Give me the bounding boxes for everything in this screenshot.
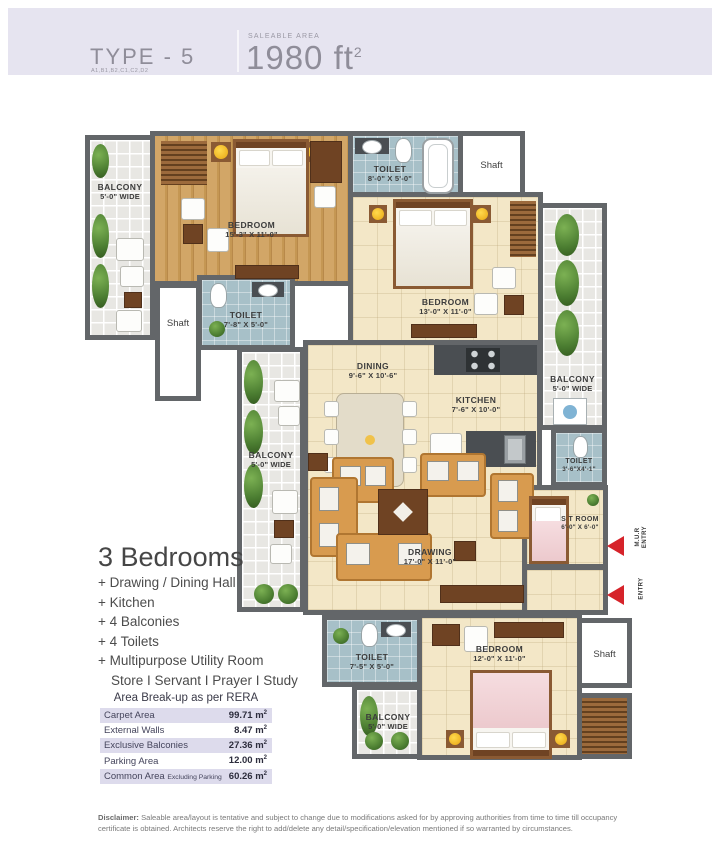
toilet-icon <box>395 138 412 163</box>
lounge-chair-icon <box>270 544 292 564</box>
row-label: Carpet Area <box>104 710 155 721</box>
desk-icon <box>494 622 564 638</box>
sofa-icon <box>420 453 486 497</box>
sink-icon <box>362 140 382 154</box>
room-st-room: S T ROOM 6'-0" X 6'-0" <box>522 485 608 569</box>
plant-icon <box>92 144 109 178</box>
disclaimer-label: Disclaimer: <box>98 813 139 822</box>
room-balcony-top-left: BALCONY 5'-0" WIDE <box>85 135 155 340</box>
feature-item: + 4 Toilets <box>98 632 298 652</box>
plant-icon <box>555 310 579 356</box>
saleable-area-sup: 2 <box>354 44 363 60</box>
type-title: TYPE - 5 <box>90 44 195 70</box>
plant-icon <box>244 464 263 508</box>
toilet-icon <box>361 623 378 647</box>
room-shaft-left: Shaft <box>155 283 201 401</box>
chair-icon <box>181 198 205 220</box>
table-row: Exclusive Balconies 27.36 m2 <box>100 738 272 753</box>
room-label-balcony-r: BALCONY 5'-0" WIDE <box>543 374 602 393</box>
toilet-icon <box>210 283 227 308</box>
wardrobe-bottom-right <box>577 693 632 759</box>
area-breakup-table: Area Break-up as per RERA Carpet Area 99… <box>100 692 272 784</box>
features-block: 3 Bedrooms + Drawing / Dining Hall + Kit… <box>98 542 298 690</box>
washing-machine-icon <box>553 398 587 425</box>
entry-marker: ENTRY <box>607 585 624 605</box>
plant-icon <box>587 494 599 506</box>
table-row: Parking Area 12.00 m2 <box>100 753 272 768</box>
side-table-icon <box>308 453 328 471</box>
room-label-shaft-l: Shaft <box>160 318 196 329</box>
plant-icon <box>254 584 274 604</box>
room-toilet-a: TOILET 8'-0" X 5'-0" <box>348 131 463 197</box>
row-label: External Walls <box>104 725 164 736</box>
room-label-toilet-a: TOILET 8'-0" X 5'-0" <box>355 164 425 183</box>
cabinet-icon <box>432 624 460 646</box>
sink-icon <box>386 624 406 637</box>
plant-icon <box>244 410 263 454</box>
plant-icon <box>333 628 349 644</box>
row-label: Common Area Excluding Parking <box>104 771 222 782</box>
room-entry-hall <box>522 565 608 615</box>
bathtub-icon <box>422 138 454 194</box>
room-label-balcony-ml: BALCONY 5'-0" WIDE <box>242 450 300 469</box>
chair-icon <box>402 457 417 473</box>
plant-icon <box>278 584 298 604</box>
room-label-toilet-d: TOILET 7'-5" X 5'-0" <box>327 652 417 671</box>
plant-icon <box>244 360 263 404</box>
row-value: 99.71 m2 <box>229 710 267 721</box>
mur-entry-label: M.U.R ENTRY <box>635 518 649 556</box>
room-label-drawing: DRAWING 17'-0" X 11'-0" <box>370 547 490 566</box>
type-subtitle: A1,B1,B2,C1,C2,D2 <box>91 68 148 74</box>
kitchen-sink-icon <box>504 435 526 464</box>
room-balcony-right: BALCONY 5'-0" WIDE <box>538 203 607 430</box>
plant-icon <box>555 214 579 256</box>
saleable-area-value: 1980 ft2 <box>246 39 363 77</box>
header-band: TYPE - 5 A1,B1,B2,C1,C2,D2 SALEABLE AREA… <box>8 8 712 75</box>
room-bedroom-2: BEDROOM 13'-0" X 11'-0" <box>348 192 543 345</box>
plant-icon <box>391 732 409 750</box>
plant-icon <box>365 732 383 750</box>
lounge-chair-icon <box>278 406 300 426</box>
table-row: Carpet Area 99.71 m2 <box>100 708 272 723</box>
entry-arrow-icon <box>607 585 624 605</box>
row-label: Exclusive Balconies <box>104 740 188 751</box>
nightstand-lamp-icon <box>446 730 464 748</box>
feature-item: + 4 Balconies <box>98 612 298 632</box>
chair-icon <box>492 267 516 289</box>
row-value: 8.47 m2 <box>234 725 267 736</box>
room-shaft-bottom-right: Shaft <box>577 618 632 688</box>
room-toilet-c: TOILET 3'-6"X4'-1" <box>551 428 607 487</box>
room-bedroom-3: BEDROOM 12'-0" X 11'-0" <box>417 613 582 760</box>
nightstand-lamp-icon <box>369 205 387 223</box>
plant-icon <box>92 264 109 308</box>
mur-entry-marker: M.U.R ENTRY <box>607 536 624 556</box>
wardrobe-icon <box>510 201 536 257</box>
room-balcony-bottom: BALCONY 5'-0" WIDE <box>352 685 424 759</box>
mur-entry-arrow-icon <box>607 536 624 556</box>
plant-icon <box>92 214 109 258</box>
room-bedroom-1: BEDROOM 15'-3" X 11'-0" <box>150 131 353 286</box>
nightstand-lamp-icon <box>473 205 491 223</box>
row-value: 27.36 m2 <box>229 740 267 751</box>
lounge-chair-icon <box>116 310 142 332</box>
row-label: Parking Area <box>104 756 158 767</box>
lounge-chair-icon <box>116 238 144 261</box>
nightstand-lamp-icon <box>211 142 231 162</box>
side-table-icon <box>124 292 142 308</box>
chair-icon <box>314 186 336 208</box>
coffee-table-icon <box>378 489 428 535</box>
side-table-icon <box>274 520 294 538</box>
sofa-icon <box>490 473 534 539</box>
room-label-balcony-tl: BALCONY 5'-0" WIDE <box>90 182 150 201</box>
room-label-toilet-b: TOILET 7'-8" X 5'-0" <box>202 310 290 329</box>
room-living-area: DINING 9'-6" X 10'-6" KITCHEN 7'-6" X 10… <box>303 340 542 615</box>
stove-icon <box>466 348 500 372</box>
table-row: External Walls 8.47 m2 <box>100 723 272 738</box>
feature-item: + Multipurpose Utility Room <box>98 651 298 671</box>
double-bed-icon <box>470 670 552 759</box>
wardrobe-icon <box>161 141 207 185</box>
chair-icon <box>324 401 339 417</box>
nightstand-lamp-icon <box>552 730 570 748</box>
header-divider <box>237 30 239 72</box>
row-value: 60.26 m2 <box>229 771 267 782</box>
disclaimer-text: Saleable area/layout is tentative and su… <box>98 813 617 833</box>
room-label-shaft-tr: Shaft <box>463 160 520 171</box>
table-row: Common Area Excluding Parking 60.26 m2 <box>100 769 272 784</box>
area-table-title: Area Break-up as per RERA <box>100 692 272 704</box>
room-toilet-d: TOILET 7'-5" X 5'-0" <box>322 615 422 687</box>
toilet-icon <box>573 436 588 458</box>
room-label-bedroom-3: BEDROOM 12'-0" X 11'-0" <box>422 644 577 663</box>
double-bed-icon <box>393 199 473 289</box>
room-label-st-room: S T ROOM 6'-0" X 6'-0" <box>555 516 605 532</box>
room-label-balcony-b: BALCONY 5'-0" WIDE <box>357 712 419 731</box>
bench-icon <box>411 324 477 338</box>
room-label-toilet-c: TOILET 3'-6"X4'-1" <box>556 458 602 474</box>
entry-label: ENTRY <box>639 570 646 608</box>
plant-icon <box>555 260 579 306</box>
tv-console-icon <box>440 585 524 603</box>
disclaimer: Disclaimer: Saleable area/layout is tent… <box>98 813 646 834</box>
features-title: 3 Bedrooms <box>98 542 298 573</box>
lounge-chair-icon <box>120 266 144 287</box>
lounge-chair-icon <box>272 490 298 514</box>
chair-icon <box>324 429 339 445</box>
desk-icon <box>310 141 342 183</box>
room-label-bedroom-1: BEDROOM 15'-3" X 11'-0" <box>155 220 348 239</box>
room-label-bedroom-2: BEDROOM 13'-0" X 11'-0" <box>353 297 538 316</box>
room-toilet-b: TOILET 7'-8" X 5'-0" <box>197 275 295 350</box>
row-value: 12.00 m2 <box>229 755 267 766</box>
lounge-chair-icon <box>274 380 300 402</box>
room-label-shaft-br: Shaft <box>582 649 627 660</box>
room-shaft-top-right: Shaft <box>458 131 525 197</box>
room-label-kitchen: KITCHEN 7'-6" X 10'-0" <box>420 395 532 414</box>
sink-icon <box>258 284 278 297</box>
bench-icon <box>235 265 299 279</box>
chair-icon <box>402 429 417 445</box>
room-label-dining: DINING 9'-6" X 10'-6" <box>318 361 428 380</box>
feature-sub-item: Store I Servant I Prayer I Study <box>98 671 298 691</box>
chair-icon <box>402 401 417 417</box>
